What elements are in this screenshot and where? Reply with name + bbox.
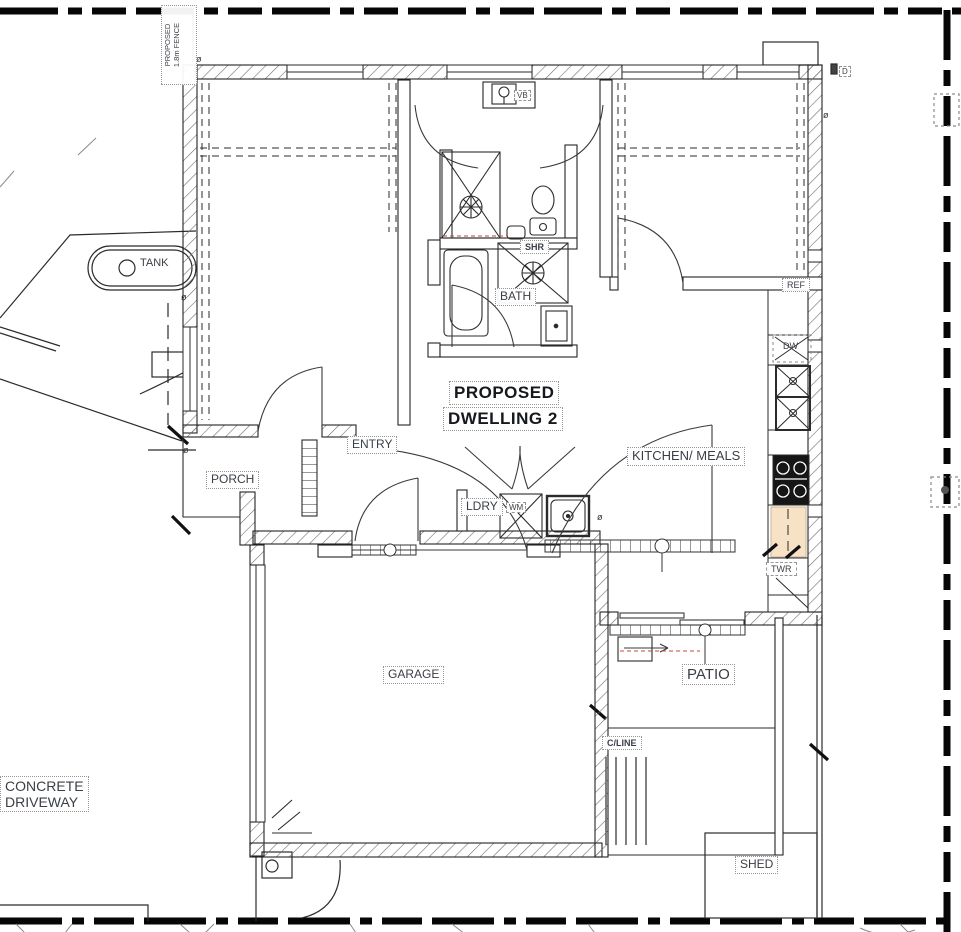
title-line2: DWELLING 2 xyxy=(443,407,563,431)
laundry-label: LDRY xyxy=(461,498,503,516)
door-marker-glyph xyxy=(831,64,837,74)
driveway-label: CONCRETEDRIVEWAY xyxy=(0,776,89,812)
patio-bench xyxy=(618,637,652,661)
clothesline-lines xyxy=(606,757,646,845)
fixtures xyxy=(442,84,652,661)
entry-label: ENTRY xyxy=(347,436,397,454)
svg-text:ø: ø xyxy=(597,512,603,522)
title-line1: PROPOSED xyxy=(449,381,559,405)
steps xyxy=(352,539,745,665)
refrigerator-label: REF xyxy=(782,278,810,292)
internal-walls xyxy=(318,80,822,855)
external-unit xyxy=(763,42,818,65)
vanity-basin-label: VB xyxy=(514,90,531,101)
kitchen-meals-label: KITCHEN/ MEALS xyxy=(627,447,745,466)
floor-plan: ø ø ø ø ø PROPOSED1.8m FENCE TANK VB SHR… xyxy=(0,0,961,932)
toilet xyxy=(530,186,556,235)
washing-machine-label: WM xyxy=(506,502,526,513)
door-marker-label: D xyxy=(839,66,851,77)
patio-label: PATIO xyxy=(682,664,735,685)
laundry-tub xyxy=(547,496,589,536)
porch-label: PORCH xyxy=(206,471,259,489)
gate-arc xyxy=(302,860,340,918)
porch-screen xyxy=(302,440,317,516)
shed-outline xyxy=(705,833,817,918)
fence-label: PROPOSED1.8m FENCE xyxy=(161,5,197,85)
tank-label: TANK xyxy=(136,256,173,271)
wardrobes xyxy=(200,83,804,420)
garage-panel-door xyxy=(256,565,265,822)
garage-label: GARAGE xyxy=(383,666,444,684)
dishwasher-label: DW xyxy=(779,340,802,352)
bathtub xyxy=(444,250,488,336)
clothesline-label: C/LINE xyxy=(602,736,642,750)
shed-label: SHED xyxy=(735,856,778,874)
svg-text:ø: ø xyxy=(181,292,187,302)
side-fence xyxy=(817,615,822,918)
shower-label: SHR xyxy=(520,240,549,254)
plan-drawing: ø ø ø ø ø xyxy=(0,0,961,932)
small-basin xyxy=(507,226,525,239)
bath-label: BATH xyxy=(495,288,536,306)
svg-text:ø: ø xyxy=(183,445,189,455)
svg-text:ø: ø xyxy=(823,110,829,120)
tower-label: TWR xyxy=(766,562,797,576)
